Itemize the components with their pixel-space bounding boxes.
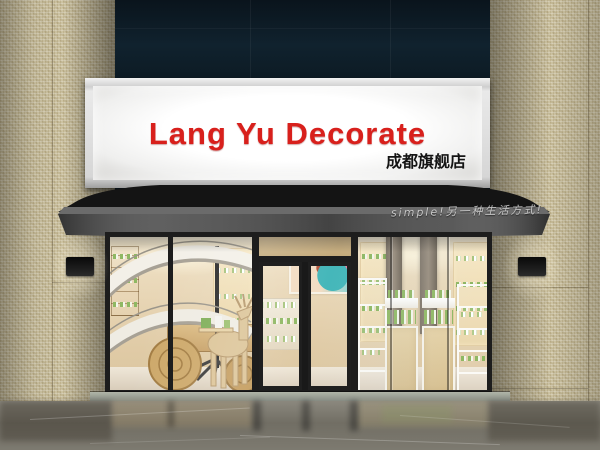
door-leaf-right[interactable] bbox=[307, 262, 351, 390]
mullion-reflection bbox=[350, 401, 358, 431]
pillar-reflection bbox=[0, 401, 112, 441]
upper-glass-wall bbox=[113, 0, 492, 82]
mullion-reflection bbox=[253, 401, 261, 431]
glass-panel-joint bbox=[250, 0, 251, 82]
door-center-stile bbox=[302, 262, 308, 390]
storefront-frame-right bbox=[487, 232, 492, 398]
marble-vein bbox=[240, 435, 500, 445]
sign-branch-text: 成都旗舰店 bbox=[386, 148, 466, 172]
products-reflection bbox=[382, 405, 452, 423]
marble-vein bbox=[90, 437, 270, 444]
sign-face: Lang Yu Decorate 成都旗舰店 bbox=[93, 86, 482, 180]
mullion-reflection bbox=[302, 401, 310, 431]
marble-floor bbox=[0, 401, 600, 450]
wall-sconce-left bbox=[66, 257, 94, 276]
storefront-scene: Lang Yu Decorate 成都旗舰店 simple!另一种生活方式! bbox=[0, 0, 600, 450]
sign-brand-text: Lang Yu Decorate bbox=[93, 116, 482, 152]
glass-panel-joint bbox=[390, 0, 391, 82]
door-leaf-left[interactable] bbox=[259, 262, 303, 390]
window-mullion bbox=[168, 232, 173, 398]
mullion-reflection bbox=[168, 401, 174, 427]
glass-panel-joint bbox=[113, 28, 492, 29]
pillar-reflection bbox=[488, 401, 600, 441]
lightbox-sign: Lang Yu Decorate 成都旗舰店 bbox=[85, 78, 490, 188]
glass-joint bbox=[390, 237, 392, 390]
storefront-frame-top bbox=[105, 232, 492, 237]
wall-sconce-right bbox=[518, 257, 546, 276]
glass-joint bbox=[447, 237, 449, 390]
